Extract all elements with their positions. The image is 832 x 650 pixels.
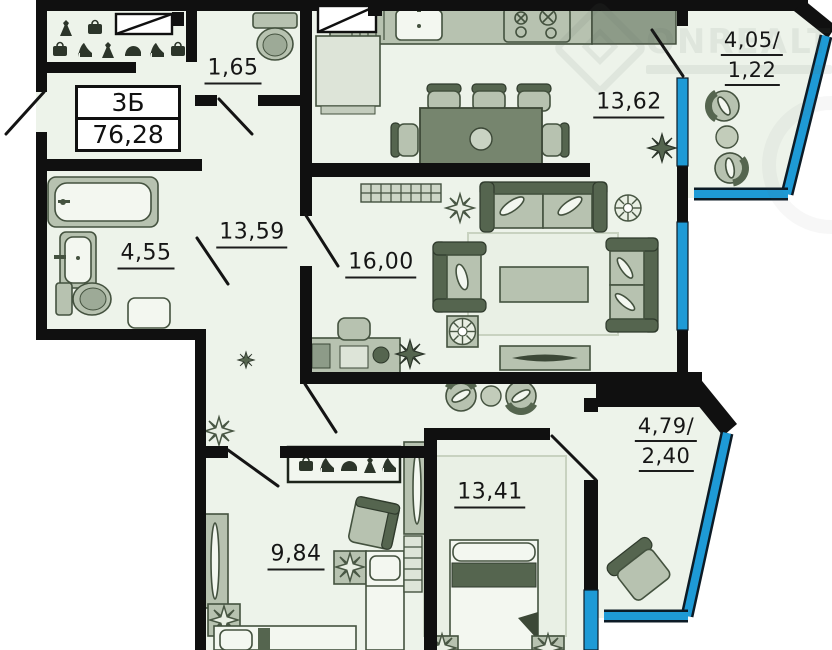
bedroom-armchair xyxy=(348,496,401,550)
unit-info-box: 3Б 76,28 xyxy=(75,85,181,152)
room-area-label-bedroom-large: 13,41 xyxy=(454,480,525,509)
room-area-label-balcony-top: 4,05/ 1,22 xyxy=(721,28,783,86)
wardrobe-hatched xyxy=(361,184,441,202)
nightstand xyxy=(532,634,564,650)
unit-type-label: 3Б xyxy=(78,88,178,120)
double-bed xyxy=(450,540,538,650)
wc-toilet xyxy=(253,13,297,60)
room-area-label-balcony-bottom: 4,79/ 2,40 xyxy=(635,414,697,472)
side-table xyxy=(447,316,478,347)
loveseat xyxy=(606,238,658,332)
room-area-label-living: 16,00 xyxy=(345,250,416,279)
bathtub xyxy=(48,177,158,227)
sofa xyxy=(480,182,607,232)
room-area-label-kitchen: 13,62 xyxy=(593,90,664,119)
plant-icon xyxy=(396,340,424,368)
bed-horizontal xyxy=(214,626,356,650)
stove xyxy=(504,8,570,42)
unit-total-area: 76,28 xyxy=(78,120,178,149)
washing-machine xyxy=(128,298,170,328)
bed-vertical xyxy=(366,551,404,650)
plant-icon xyxy=(615,195,641,221)
plant-icon xyxy=(446,194,474,222)
room-area-label-wc: 1,65 xyxy=(205,56,262,85)
radiator-plant-icon xyxy=(205,417,233,445)
armchair xyxy=(433,242,486,312)
fridge xyxy=(316,36,380,114)
room-area-label-bedroom-small: 9,84 xyxy=(268,542,325,571)
nightstand xyxy=(334,551,366,584)
room-area-label-bathroom: 4,55 xyxy=(118,241,175,270)
toilet xyxy=(56,283,111,315)
plant-icon xyxy=(238,352,255,369)
shelving xyxy=(404,536,422,592)
plant-icon xyxy=(648,134,676,162)
floor-plan: ONREALT 3Б 76,28 1,65 13,62 4,05/ 1,22 1… xyxy=(0,0,832,650)
bathroom-sink xyxy=(54,232,96,288)
mezzanine-symbol xyxy=(318,4,382,32)
coffee-table xyxy=(500,267,588,302)
room-area-label-hallway: 13,59 xyxy=(216,220,287,249)
tv-stand xyxy=(500,346,590,370)
